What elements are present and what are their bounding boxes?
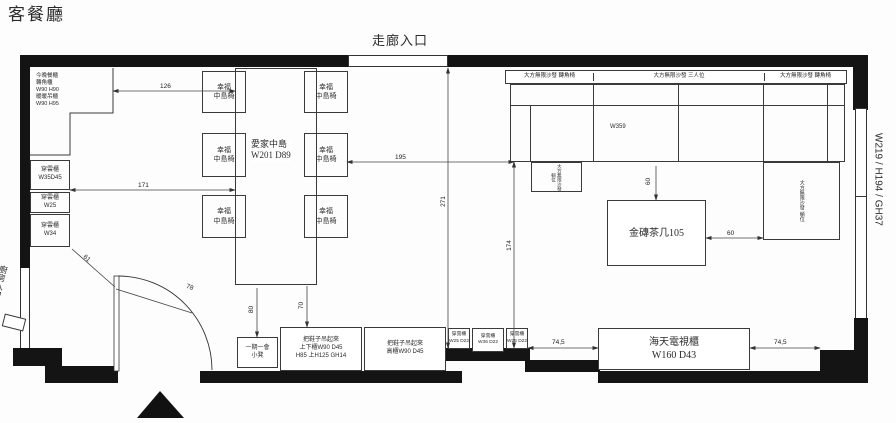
coffee-table: 金磚茶几105	[607, 200, 706, 266]
door-leaf	[114, 276, 119, 371]
window-mullion	[855, 196, 867, 197]
sofa-divider	[593, 84, 594, 162]
island-label: 愛家中島 W201 D89	[251, 139, 291, 162]
dim-171: 171	[138, 182, 149, 189]
window-dimension-label: W219 / H194 / GH37	[871, 133, 884, 226]
dim-126: 126	[160, 83, 171, 90]
sofa-ottoman-label: 大方無限沙發 躺位	[551, 163, 563, 191]
sofa-label-strip: 大方無限沙發 轉角椅 大方無限沙發 三人位 大方無限沙發 轉角椅	[505, 70, 847, 84]
cabinet-left-3: 穿雲櫃 W34	[30, 214, 70, 247]
sofa-corner-right-label: 大方無限沙發 轉角椅	[765, 73, 846, 80]
dim-78: 78	[185, 283, 194, 292]
corner-cabinet-label: 今晚餐櫃 轉角櫃 W90 H90 暖暖吊櫃 W90 H95	[36, 73, 59, 107]
dim-174: 174	[506, 240, 513, 251]
sofa-divider	[678, 84, 679, 162]
wall-bottom-step3	[525, 360, 600, 372]
cabinet-bottom-2: 穿雲櫃 W36 D22	[472, 328, 504, 352]
sofa-width-label: W359	[610, 124, 626, 132]
cabinet-bottom-1: 穿雲櫃 W25 D22	[448, 328, 470, 349]
island-chair: 幸福 中島椅	[202, 71, 246, 113]
door-arc	[118, 276, 212, 370]
wall-right-top	[853, 55, 868, 110]
dim-74-5-left: 74,5	[552, 339, 565, 346]
dim-74-5-right: 74,5	[774, 339, 787, 346]
dim-195: 195	[395, 154, 406, 161]
island-chair: 幸福 中島椅	[304, 133, 348, 177]
sofa-chaise: 大方無限沙發 躺位	[763, 162, 840, 240]
wall-bottom-step2	[45, 366, 118, 383]
tv-cabinet: 海天電視櫃 W160 D43	[598, 328, 750, 370]
corridor-opening	[348, 55, 448, 67]
wall-corner-block	[820, 350, 868, 383]
island-chair: 幸福 中島椅	[202, 133, 246, 177]
corridor-entrance-label: 走廊入口	[372, 33, 428, 49]
shoe-cabinet-tall: 把鞋子吊起來 高櫃W90 D45	[364, 327, 446, 371]
dim-61: 61	[82, 253, 92, 263]
entrance-arrow-triangle	[137, 391, 184, 418]
sofa-divider	[530, 105, 531, 162]
kitchen-entrance-label: 廚房入口	[0, 264, 9, 300]
sofa-three-seat-label: 大方無限沙發 三人位	[594, 73, 765, 80]
dim-80: 80	[248, 306, 255, 313]
dim-line-78	[116, 289, 192, 313]
cabinet-left-2: 穿雲櫃 W25	[30, 192, 70, 213]
sofa-chaise-label: 大方無限沙發 躺位	[798, 180, 805, 221]
sofa-divider	[763, 84, 764, 162]
island-chair: 幸福 中島椅	[304, 195, 348, 238]
shoe-cabinet-duo: 把鞋子吊起來 上下櫃W90 D45 H85 上H125 GH14	[280, 327, 362, 371]
island-chair: 幸福 中島椅	[202, 195, 246, 238]
sofa-ottoman: 大方無限沙發 躺位	[531, 162, 582, 192]
dim-line-61	[72, 249, 115, 287]
floor-plan: 客餐廳 走廊入口 W219 / H194 / GH37 廚房入口 今晚餐櫃 轉角…	[0, 0, 896, 423]
dim-271: 271	[440, 196, 447, 207]
dim-70: 70	[298, 302, 305, 309]
cabinet-bottom-3: 穿雲櫃 W25 D22	[506, 328, 528, 349]
island-chair: 幸福 中島椅	[304, 71, 348, 113]
page-title: 客餐廳	[8, 4, 65, 25]
wall-bottom-mid	[200, 371, 462, 383]
dim-60-vertical: 60	[645, 178, 652, 185]
sofa-corner-left-label: 大方無限沙發 轉角椅	[506, 73, 594, 80]
cabinet-left-1: 穿雲櫃 W35D45	[30, 160, 70, 190]
wall-bottom-right	[598, 371, 822, 383]
right-window	[855, 108, 867, 320]
dim-60-horizontal: 60	[727, 230, 734, 237]
stool: 一期一會 小凳	[237, 337, 278, 368]
sofa-divider	[827, 84, 828, 162]
wall-left	[20, 55, 30, 268]
wall-bottom-step1	[13, 348, 62, 366]
kitchen-opening	[20, 268, 30, 348]
